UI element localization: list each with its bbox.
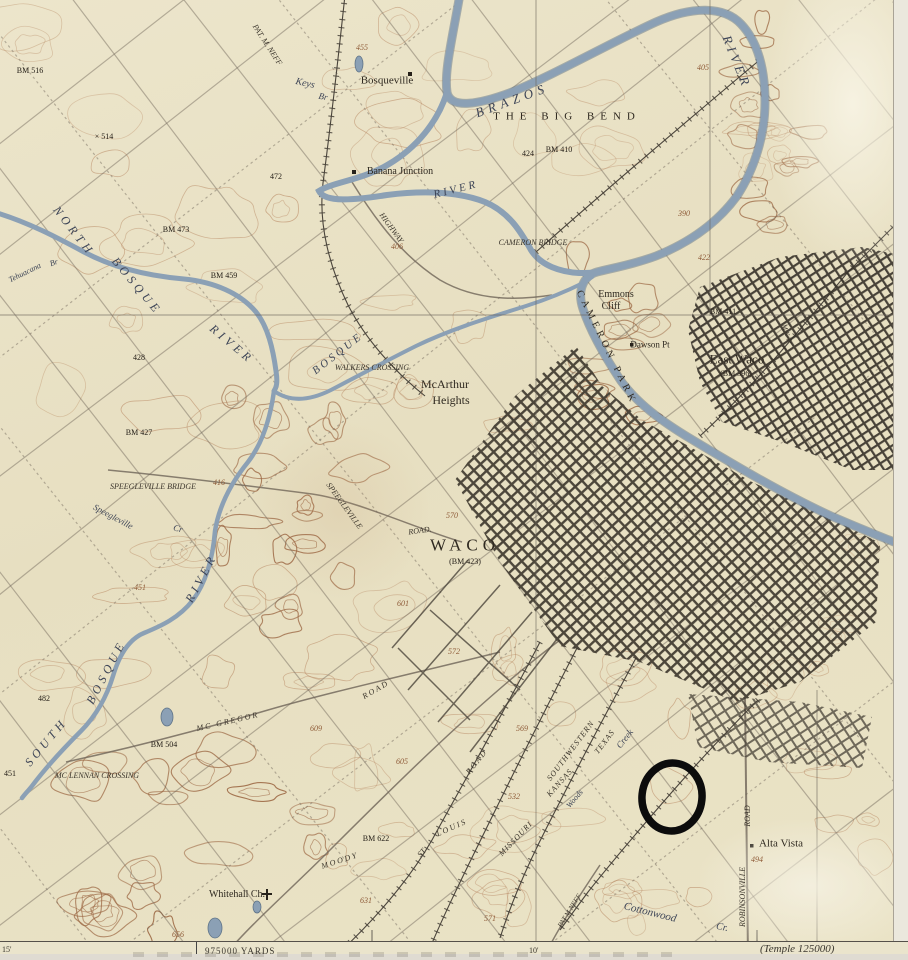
highlight-circle-annotation[interactable] <box>639 760 706 834</box>
church-cross-icon <box>262 889 272 900</box>
paper-margin-right <box>893 0 908 960</box>
brazos-river-upper <box>319 92 597 273</box>
urban-street-grid-layer <box>455 247 908 768</box>
mcgregor-road <box>66 652 500 762</box>
east-waco-street-grid <box>688 247 908 470</box>
margin-tick-label-left: 15' <box>2 945 11 954</box>
section-roads-layer <box>0 0 908 960</box>
map-artwork <box>0 0 908 960</box>
south-suburb-grid <box>688 694 872 768</box>
credit-line-fragment <box>120 952 680 957</box>
north-bosque-river <box>0 212 277 391</box>
speegleville-road <box>108 470 462 542</box>
south-bosque-river <box>22 391 274 798</box>
topographic-map: BM 516× 514455PAT. M. NEFFKeysBrBosquevi… <box>0 0 908 960</box>
